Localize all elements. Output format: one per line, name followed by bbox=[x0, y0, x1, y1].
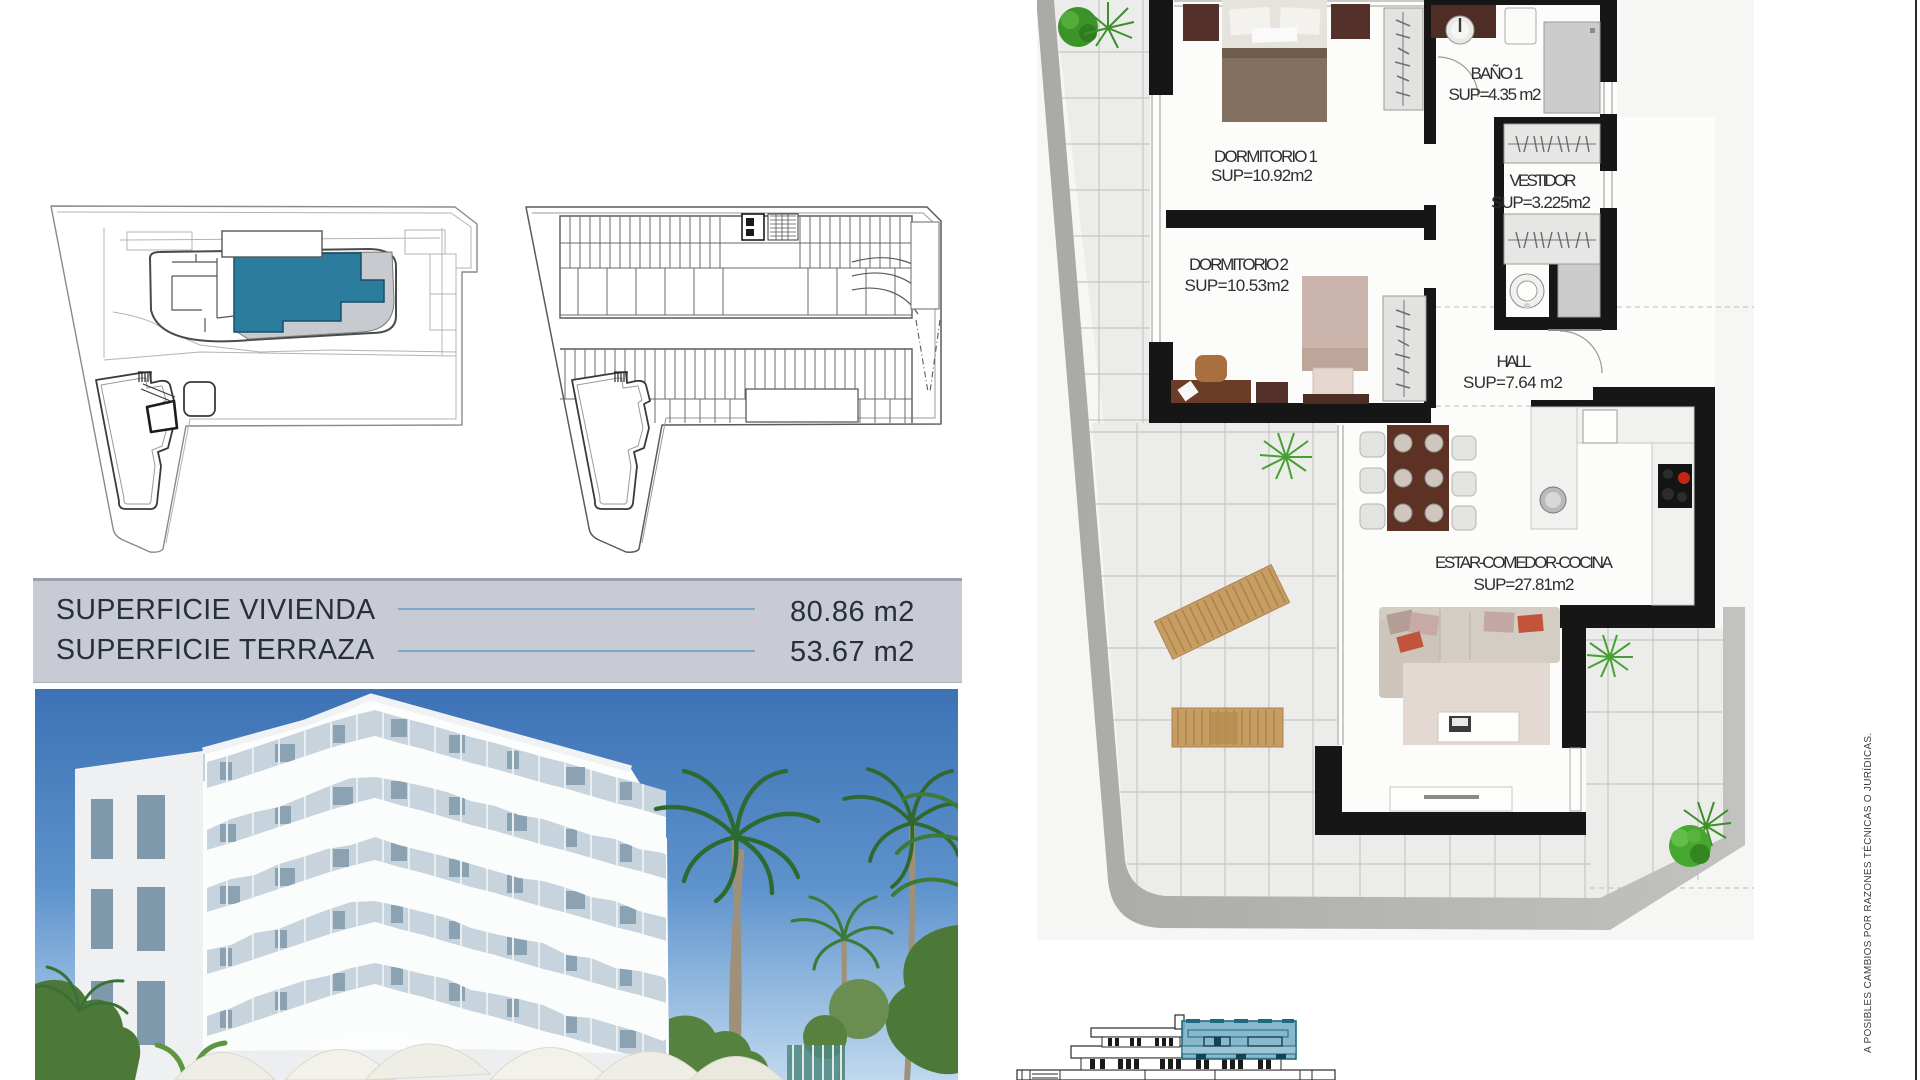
svg-text:HALL: HALL bbox=[1497, 352, 1532, 371]
svg-text:SUP=3.225m2: SUP=3.225m2 bbox=[1491, 193, 1591, 212]
svg-text:SUP=4.35 m2: SUP=4.35 m2 bbox=[1449, 85, 1542, 104]
svg-text:VESTIDOR: VESTIDOR bbox=[1510, 171, 1577, 190]
svg-text:SUP=10.92m2: SUP=10.92m2 bbox=[1211, 166, 1313, 185]
svg-text:DORMITORIO 2: DORMITORIO 2 bbox=[1189, 255, 1289, 274]
svg-text:SUP=7.64 m2: SUP=7.64 m2 bbox=[1463, 373, 1563, 392]
svg-text:SUP=10.53m2: SUP=10.53m2 bbox=[1185, 276, 1290, 295]
svg-text:DORMITORIO 1: DORMITORIO 1 bbox=[1214, 147, 1318, 166]
svg-text:ESTAR-COMEDOR-COCINA: ESTAR-COMEDOR-COCINA bbox=[1435, 553, 1614, 572]
svg-text:BAÑO 1: BAÑO 1 bbox=[1471, 64, 1524, 83]
svg-text:SUP=27.81m2: SUP=27.81m2 bbox=[1474, 575, 1575, 594]
